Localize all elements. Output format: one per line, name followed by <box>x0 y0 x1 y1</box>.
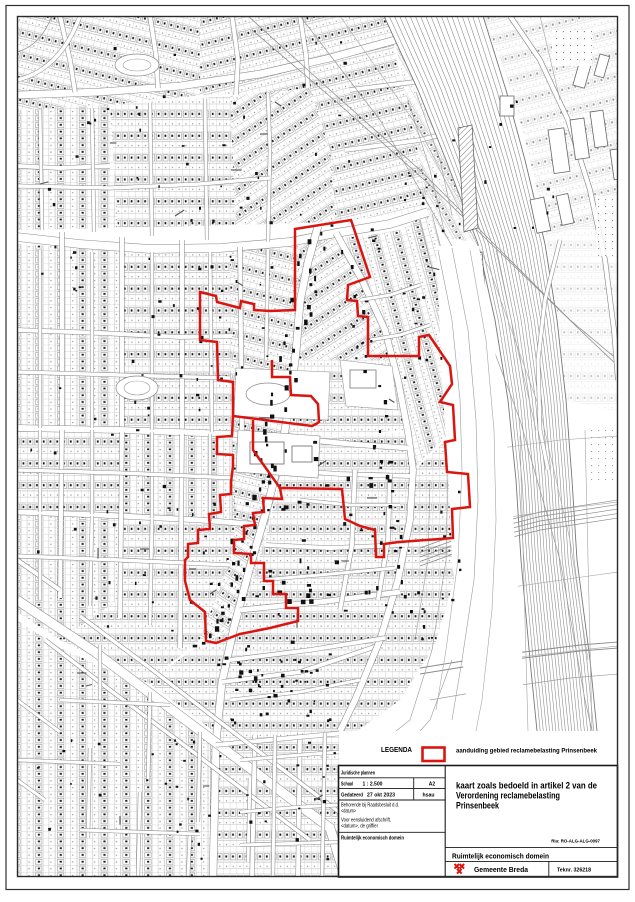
svg-text:Juridische plannen: Juridische plannen <box>341 771 375 777</box>
svg-text:Gedateerd: Gedateerd <box>341 792 363 798</box>
svg-text:Schaal: Schaal <box>341 781 353 787</box>
svg-text:Gemeente Breda: Gemeente Breda <box>474 867 528 874</box>
svg-text:Teknr. 326218: Teknr. 326218 <box>557 867 591 873</box>
svg-text:kaart zoals bedoeld in artikel: kaart zoals bedoeld in artikel 2 van de <box>456 781 597 791</box>
svg-text:Ria: RO-ALG-ALG-0097: Ria: RO-ALG-ALG-0097 <box>551 839 600 844</box>
svg-text:<datum>, de griffier: <datum>, de griffier <box>341 823 378 829</box>
svg-text:A2: A2 <box>429 781 436 787</box>
svg-text:LEGENDA: LEGENDA <box>381 745 412 754</box>
svg-text:Ruimtelijk economisch domein: Ruimtelijk economisch domein <box>452 852 549 861</box>
svg-text:1 : 2.500: 1 : 2.500 <box>363 781 383 787</box>
svg-text:hsau: hsau <box>423 792 435 798</box>
svg-text:27 okt 2023: 27 okt 2023 <box>367 792 395 798</box>
svg-text:aanduiding gebied reclamebelas: aanduiding gebied reclamebelasting Prins… <box>456 748 597 755</box>
svg-text:Ruimtelijk economisch domein: Ruimtelijk economisch domein <box>341 835 404 841</box>
svg-text:Verordening reclamebelasting: Verordening reclamebelasting <box>456 791 560 801</box>
svg-text:Prinsenbeek: Prinsenbeek <box>456 801 500 811</box>
svg-text:<datum>: <datum> <box>341 808 356 814</box>
